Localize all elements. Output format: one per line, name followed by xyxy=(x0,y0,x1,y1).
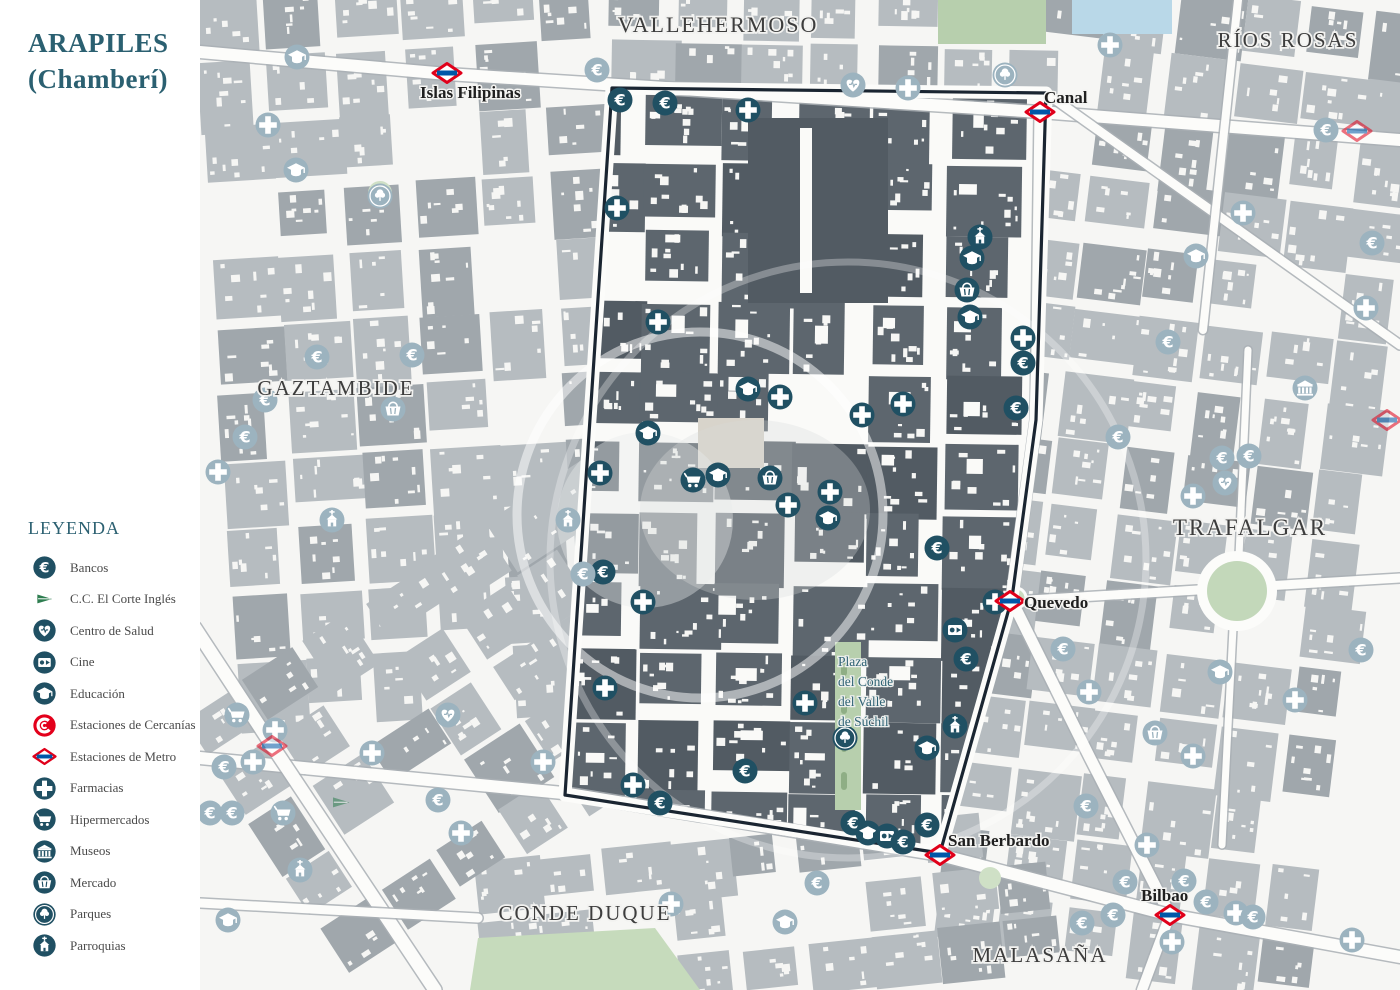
legend-item: Museos xyxy=(28,839,213,864)
market-icon xyxy=(1143,721,1168,746)
pharmacy-icon xyxy=(588,461,613,486)
legend-item-label: Centro de Salud xyxy=(70,623,154,639)
page-title: ARAPILES (Chamberí) xyxy=(28,26,169,97)
cinema-icon xyxy=(943,618,968,643)
pharmacy-icon xyxy=(605,196,630,221)
bank-icon xyxy=(220,801,245,826)
pharmacy-icon xyxy=(631,590,656,615)
legend-item-label: Estaciones de Metro xyxy=(70,749,176,765)
bank-icon xyxy=(1349,638,1374,663)
health-center-icon xyxy=(436,703,461,728)
district-label: TRAFALGAR xyxy=(1173,515,1327,540)
bank-icon xyxy=(1070,911,1095,936)
bank-icon xyxy=(1106,425,1131,450)
pharmacy-icon xyxy=(850,403,875,428)
pharmacy-icon xyxy=(206,460,231,485)
bank-icon xyxy=(1004,396,1029,421)
museo-icon xyxy=(32,839,57,864)
legend-item: Centro de Salud xyxy=(28,618,213,643)
bank-icon xyxy=(954,647,979,672)
page-title-line1: ARAPILES xyxy=(28,26,169,62)
legend-item-label: Bancos xyxy=(70,560,108,576)
bank-icon xyxy=(1101,903,1126,928)
bank-icon xyxy=(1011,351,1036,376)
education-icon xyxy=(915,736,940,761)
bank-icon xyxy=(648,791,673,816)
bank-icon xyxy=(1210,446,1235,471)
cine-icon xyxy=(32,650,57,675)
legend-item-label: Estaciones de Cercanías xyxy=(70,717,196,733)
bank-icon xyxy=(733,759,758,784)
market-icon xyxy=(955,278,980,303)
district-label: RÍOS ROSAS xyxy=(1218,28,1359,52)
legend-item: C.C. El Corte Inglés xyxy=(28,587,213,612)
bank-icon xyxy=(1051,637,1076,662)
education-icon xyxy=(773,910,798,935)
education-icon xyxy=(736,377,761,402)
legend-item-label: Museos xyxy=(70,843,110,859)
pharmacy-icon xyxy=(449,821,474,846)
bank-icon xyxy=(571,562,596,587)
metro-station-label: San Berbardo xyxy=(948,831,1050,850)
district-label: CONDE DUQUE xyxy=(498,901,671,925)
bank-icon xyxy=(212,755,237,780)
bank-icon xyxy=(1314,118,1339,143)
bank-icon xyxy=(1241,905,1266,930)
bank-icon xyxy=(1074,794,1099,819)
cercanias-icon xyxy=(32,713,57,738)
education-icon xyxy=(285,45,310,70)
sidebar: ARAPILES (Chamberí) LEYENDA Bancos C.C. … xyxy=(0,0,200,990)
market-icon xyxy=(758,466,783,491)
education-icon xyxy=(816,506,841,531)
pharmacy-icon xyxy=(818,480,843,505)
metro-station-label: Quevedo xyxy=(1024,593,1088,612)
pharmacy-icon xyxy=(621,773,646,798)
education-icon xyxy=(960,246,985,271)
hiper-icon xyxy=(32,807,57,832)
pharmacy-icon xyxy=(593,676,618,701)
legend-title: LEYENDA xyxy=(28,518,213,539)
page-title-line2: (Chamberí) xyxy=(28,62,169,98)
metro-station-label: Canal xyxy=(1044,88,1088,107)
bank-icon xyxy=(1360,231,1385,256)
bank-icon xyxy=(233,425,258,450)
pharmacy-icon xyxy=(1135,833,1160,858)
map-page: € xyxy=(0,0,1400,990)
legend-item-label: Mercado xyxy=(70,875,116,891)
education-icon xyxy=(1208,660,1233,685)
pharmacy-icon xyxy=(1181,484,1206,509)
education-icon xyxy=(706,463,731,488)
pharmacy-icon xyxy=(776,493,801,518)
pharmacy-icon xyxy=(1098,33,1123,58)
edu-icon xyxy=(32,681,57,706)
legend-item: Mercado xyxy=(28,870,213,895)
legend-item-label: Farmacias xyxy=(70,780,123,796)
bank-icon xyxy=(305,345,330,370)
pharmacy-icon xyxy=(360,741,385,766)
health-center-icon xyxy=(841,73,866,98)
parish-icon xyxy=(943,714,968,739)
metro-icon xyxy=(32,744,57,769)
pharmacy-icon xyxy=(1354,296,1379,321)
bank-icon xyxy=(915,813,940,838)
bank-icon xyxy=(891,830,916,855)
hypermarket-icon xyxy=(681,468,706,493)
pharmacy-icon xyxy=(793,691,818,716)
pharmacy-icon xyxy=(241,750,266,775)
district-label: VALLEHERMOSO xyxy=(618,12,819,37)
education-icon xyxy=(284,158,309,183)
pharmacy-icon xyxy=(1077,680,1102,705)
pharm-icon xyxy=(32,776,57,801)
pharmacy-icon xyxy=(1340,928,1365,953)
park-icon xyxy=(993,63,1018,88)
education-icon xyxy=(636,421,661,446)
metro-station-label: Islas Filipinas xyxy=(420,83,521,102)
education-icon xyxy=(958,305,983,330)
hypermarket-icon xyxy=(271,801,296,826)
parish-icon xyxy=(288,858,313,883)
salud-icon xyxy=(32,618,57,643)
museum-icon xyxy=(1293,376,1318,401)
pharmacy-icon xyxy=(891,392,916,417)
pharmacy-icon xyxy=(1231,201,1256,226)
pharmacy-icon xyxy=(646,310,671,335)
bank-icon xyxy=(925,536,950,561)
legend-item-label: Hipermercados xyxy=(70,812,149,828)
legend-item-label: Educación xyxy=(70,686,125,702)
market-icon xyxy=(381,397,406,422)
parish-icon xyxy=(320,508,345,533)
district-label: MALASAÑA xyxy=(972,943,1107,967)
legend-item-label: C.C. El Corte Inglés xyxy=(70,591,176,607)
pharmacy-icon xyxy=(256,113,281,138)
legend-item: Farmacias xyxy=(28,776,213,801)
bank-icon xyxy=(1113,870,1138,895)
merc-icon xyxy=(32,870,57,895)
legend-item: Educación xyxy=(28,681,213,706)
metro-station-label: Bilbao xyxy=(1141,886,1188,905)
legend-item-label: Cine xyxy=(70,654,95,670)
health-center-icon xyxy=(1213,471,1238,496)
legend: LEYENDA Bancos C.C. El Corte Inglés Cent… xyxy=(28,518,213,965)
parish-icon xyxy=(556,508,581,533)
pharmacy-icon xyxy=(1011,326,1036,351)
bank-icon xyxy=(805,871,830,896)
park-icon xyxy=(833,726,858,751)
legend-item-label: Parques xyxy=(70,906,111,922)
pharmacy-icon xyxy=(896,76,921,101)
pharmacy-icon xyxy=(768,385,793,410)
parr-icon xyxy=(32,933,57,958)
legend-item: Cine xyxy=(28,650,213,675)
bank-icon xyxy=(400,343,425,368)
pharmacy-icon xyxy=(1181,744,1206,769)
legend-item: Parques xyxy=(28,902,213,927)
corte-icon xyxy=(32,587,57,612)
bank-icon xyxy=(585,58,610,83)
legend-item: Estaciones de Metro xyxy=(28,744,213,769)
bank-icon xyxy=(608,88,633,113)
legend-item: Parroquias xyxy=(28,933,213,958)
bank-icon xyxy=(1156,330,1181,355)
pharmacy-icon xyxy=(531,750,556,775)
legend-item: Bancos xyxy=(28,555,213,580)
education-icon xyxy=(1184,244,1209,269)
parque-icon xyxy=(32,902,57,927)
bank-icon xyxy=(32,555,57,580)
hypermarket-icon xyxy=(225,703,250,728)
bank-icon xyxy=(653,91,678,116)
pharmacy-icon xyxy=(1283,688,1308,713)
education-icon xyxy=(216,908,241,933)
legend-item: Estaciones de Cercanías xyxy=(28,713,213,738)
legend-item-label: Parroquias xyxy=(70,938,126,954)
pharmacy-icon xyxy=(1160,930,1185,955)
pharmacy-icon xyxy=(736,98,761,123)
bank-icon xyxy=(1194,890,1219,915)
bank-icon xyxy=(426,788,451,813)
bank-icon xyxy=(1237,444,1262,469)
legend-list: Bancos C.C. El Corte Inglés Centro de Sa… xyxy=(28,555,213,958)
park-icon xyxy=(368,184,393,209)
district-label: GAZTAMBIDE xyxy=(257,376,414,400)
legend-item: Hipermercados xyxy=(28,807,213,832)
